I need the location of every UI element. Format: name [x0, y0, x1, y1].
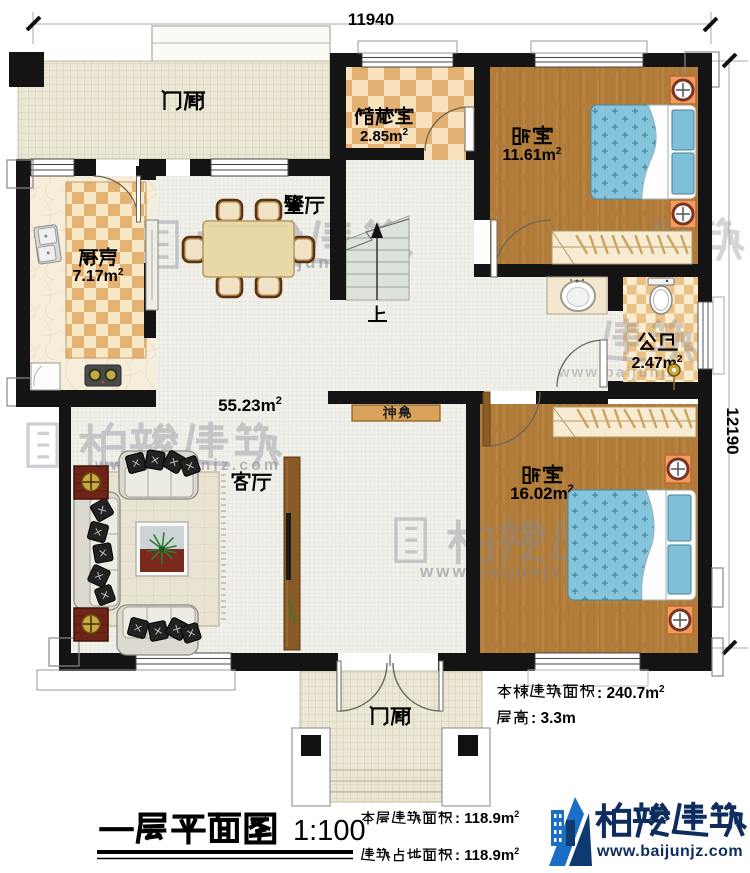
svg-text:: 3.3m: : 3.3m — [531, 710, 576, 727]
svg-text:12190: 12190 — [723, 407, 742, 454]
svg-text:55.23m2: 55.23m2 — [218, 395, 282, 415]
svg-text:11.61m2: 11.61m2 — [503, 146, 562, 164]
svg-text:7.17m2: 7.17m2 — [73, 267, 124, 285]
svg-text:: 118.9m2: : 118.9m2 — [455, 846, 519, 864]
svg-text:: 118.9m2: : 118.9m2 — [455, 809, 519, 827]
svg-text:1:100: 1:100 — [293, 815, 366, 847]
svg-text:www.baijunjz.com: www.baijunjz.com — [596, 843, 743, 860]
svg-text:11940: 11940 — [348, 10, 394, 29]
svg-text:16.02m2: 16.02m2 — [510, 483, 574, 503]
svg-text:2.85m2: 2.85m2 — [360, 127, 409, 145]
svg-text:: 240.7m2: : 240.7m2 — [597, 684, 665, 702]
